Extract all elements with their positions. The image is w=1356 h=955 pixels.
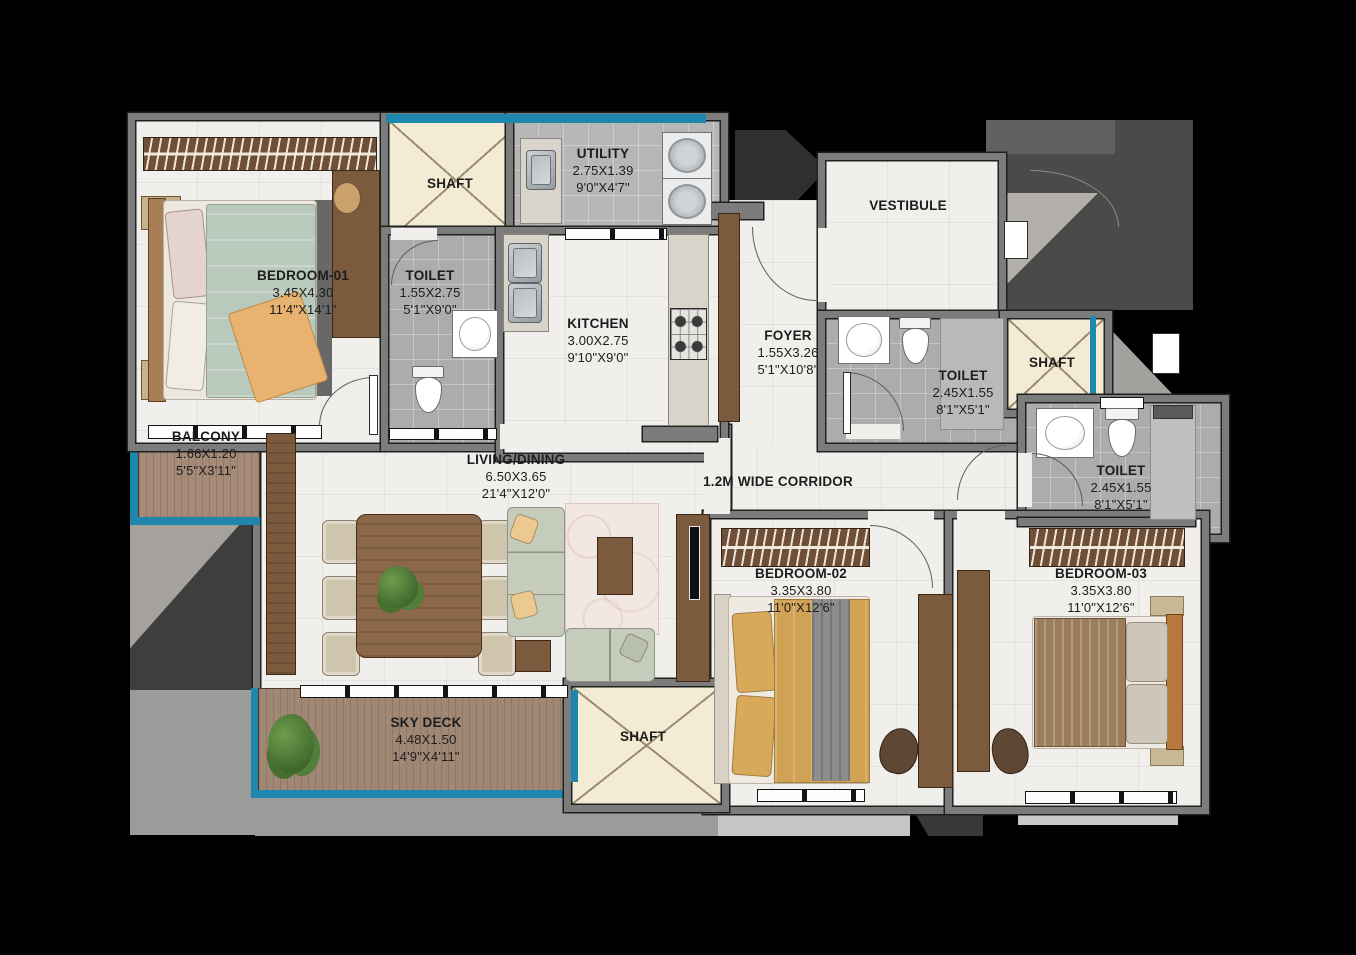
room-dim-ft: 9'0"X4'7" [572,179,633,196]
coffee-table [597,537,633,595]
door-gap-toilet-bed03 [1018,453,1032,507]
toilet-common-basin [838,316,890,364]
sky-deck-edge-left [251,688,258,795]
bed-02-pillow-1 [731,611,776,694]
sky-deck-plant [268,714,314,774]
floor-plan-canvas: BEDROOM-01 3.45X4.30 11'4"X14'1" TOILET … [0,0,1356,955]
label-living-dining: LIVING/DINING 6.50X3.65 21'4"X12'0" [467,451,566,502]
stool-bedroom-01 [333,182,361,214]
door-leaf-toilet-common [843,372,851,434]
room-dim-m: 2.45X1.55 [932,384,993,401]
door-gap-bedroom-02 [868,511,934,525]
door-leaf-shaft-lobby [1152,333,1180,374]
label-shaft-top: SHAFT [427,175,473,192]
balcony-edge-bottom [130,517,260,525]
living-sideboard [266,433,296,675]
room-name: BEDROOM-01 [257,267,349,284]
door-gap-vestibule [818,228,832,302]
opening-kitchen-living [500,424,646,449]
room-dim-m: 1.55X3.26 [757,344,818,361]
toilet-bed03-shower [1150,405,1196,520]
bed-03-headboard [1166,614,1183,750]
label-balcony: BALCONY 1.66X1.20 5'5"X3'11" [172,428,240,479]
room-name: UTILITY [572,145,633,162]
bedroom-03-window [1025,791,1177,804]
room-dim-ft: 5'1"X10'8" [757,361,818,378]
label-bedroom-03: BEDROOM-03 3.35X3.80 11'0"X12'6" [1055,565,1147,616]
utility-top-edge-blue [386,114,706,123]
label-corridor: 1.2M WIDE CORRIDOR [703,473,853,490]
label-shaft-right: SHAFT [1029,354,1075,371]
bed-03-pillow-1 [1126,622,1168,682]
room-dim-m: 1.66X1.20 [172,445,240,462]
kitchen-stove [670,308,707,360]
room-dim-m: 1.55X2.75 [399,284,460,301]
label-toilet-common: TOILET 2.45X1.55 8'1"X5'1" [932,367,993,418]
room-dim-m: 2.45X1.55 [1090,479,1151,496]
utility-sink [526,150,556,190]
bed-03-pillow-2 [1126,684,1168,744]
label-shaft-bottom: SHAFT [620,728,666,745]
room-dim-ft: 21'4"X12'0" [467,485,566,502]
room-name: SHAFT [620,728,666,745]
room-dim-ft: 9'10"X9'0" [567,349,628,366]
door-gap-toilet-attached [391,228,437,240]
room-dim-m: 2.75X1.39 [572,162,633,179]
door-leaf-bedroom-01 [369,375,378,435]
tv-screen [689,526,700,600]
shaft-bottom-edge-blue [571,690,578,782]
room-name: SKY DECK [390,714,461,731]
room-name: LIVING/DINING [467,451,566,468]
room-name: SHAFT [427,175,473,192]
toilet-bed03-basin [1036,408,1094,458]
room-dim-m: 3.35X3.80 [1055,582,1147,599]
kitchen-sink-2 [508,283,542,323]
room-name: BALCONY [172,428,240,445]
shadow-bottom-left-band [130,690,255,835]
wardrobe-bedroom-03 [1029,528,1185,567]
dining-chair-left-3 [322,632,360,676]
room-name: VESTIBULE [869,197,947,214]
shadow-upper-right-strip [986,120,1115,154]
label-bedroom-01: BEDROOM-01 3.45X4.30 11'4"X14'1" [257,267,349,318]
bed-03-duvet [1034,618,1126,747]
label-toilet-attached: TOILET 1.55X2.75 5'1"X9'0" [399,267,460,318]
room-name: TOILET [1090,462,1151,479]
room-shaft-bottom [564,679,729,812]
room-dim-ft: 11'4"X14'1" [257,301,349,318]
dining-table [356,514,482,658]
room-name: BEDROOM-03 [1055,565,1147,582]
desk-bedroom-02 [918,594,953,788]
room-name: TOILET [932,367,993,384]
room-dim-ft: 5'1"X9'0" [399,301,460,318]
door-gap-bedroom-03 [957,511,1005,525]
label-foyer: FOYER 1.55X3.26 5'1"X10'8" [757,327,818,378]
dining-chair-left-2 [322,576,360,620]
room-dim-m: 3.00X2.75 [567,332,628,349]
room-dim-m: 4.48X1.50 [390,731,461,748]
room-dim-m: 3.45X4.30 [257,284,349,301]
room-name: BEDROOM-02 [755,565,847,582]
sky-deck-edge-bottom [251,790,581,798]
bed-03-pad-top [1150,596,1184,616]
room-dim-ft: 8'1"X5'1" [1090,496,1151,513]
room-name: KITCHEN [567,315,628,332]
room-dim-ft: 14'9"X4'11" [390,748,461,765]
toilet-bed03-shower-head [1153,405,1193,419]
bed-02-runner [812,599,850,781]
wardrobe-bedroom-02 [721,528,870,567]
washing-machine-2 [662,178,712,225]
bedroom-02-window [757,789,865,802]
kitchen-sink-1 [508,243,542,283]
door-gap-bedroom-01 [320,424,373,438]
foyer-shoe-cabinet [718,213,740,422]
room-name: 1.2M WIDE CORRIDOR [703,473,853,490]
dining-table-plant [378,566,418,608]
wall-stub-living [643,427,717,441]
room-name: SHAFT [1029,354,1075,371]
label-utility: UTILITY 2.75X1.39 9'0"X4'7" [572,145,633,196]
label-kitchen: KITCHEN 3.00X2.75 9'10"X9'0" [567,315,628,366]
wardrobe-bedroom-01 [143,137,377,171]
shaft-right-edge-blue [1090,316,1096,398]
room-dim-m: 6.50X3.65 [467,468,566,485]
utility-service-window [565,228,667,240]
room-dim-ft: 11'0"X12'6" [755,599,847,616]
shadow-foyer-top-wedge [735,130,827,208]
dining-chair-left-1 [322,520,360,564]
toilet-attached-window [389,428,497,440]
dining-chair-right-3 [478,632,516,676]
room-dim-m: 3.35X3.80 [755,582,847,599]
washing-machine-1 [662,132,712,179]
room-vestibule [818,153,1006,331]
living-side-table [515,640,551,672]
label-bedroom-02: BEDROOM-02 3.35X3.80 11'0"X12'6" [755,565,847,616]
sky-deck-slider-window [300,685,568,698]
room-name: FOYER [757,327,818,344]
label-vestibule: VESTIBULE [869,197,947,214]
desk-bedroom-03 [957,570,990,772]
room-dim-ft: 8'1"X5'1" [932,401,993,418]
room-dim-ft: 11'0"X12'6" [1055,599,1147,616]
bed-01-pillow-2 [165,301,211,392]
bed-02-pillow-2 [731,695,776,778]
label-sky-deck: SKY DECK 4.48X1.50 14'9"X4'11" [390,714,461,765]
door-leaf-main-entrance [1004,221,1028,259]
room-dim-ft: 5'5"X3'11" [172,462,240,479]
label-toilet-bed03: TOILET 2.45X1.55 8'1"X5'1" [1090,462,1151,513]
room-name: TOILET [399,267,460,284]
